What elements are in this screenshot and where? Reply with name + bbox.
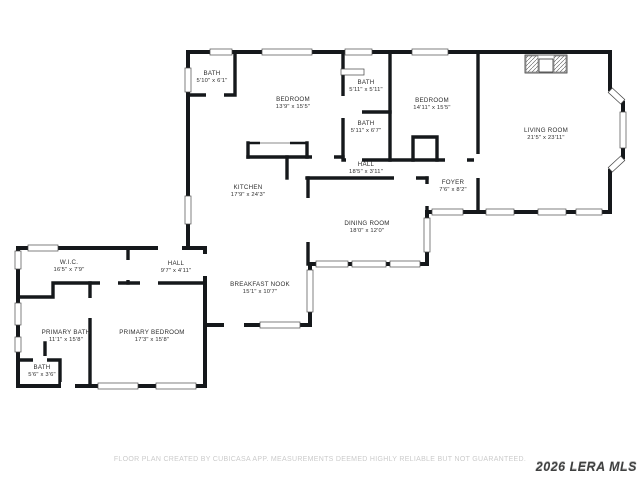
watermark-text: 2026 LERA MLS — [536, 460, 637, 474]
floor-plan-drawing — [0, 0, 640, 480]
interior-walls — [18, 52, 478, 386]
exterior-walls — [18, 52, 623, 386]
fixtures — [341, 55, 567, 75]
bay-window — [608, 88, 626, 172]
closet-bump — [413, 137, 437, 160]
towel-bar — [341, 69, 364, 75]
windows — [15, 49, 626, 389]
front-door — [432, 209, 463, 215]
floor-plan: BATH5'10" x 6'1"BEDROOM13'9" x 15'5"BATH… — [0, 0, 640, 480]
fireplace-icon — [525, 55, 567, 73]
